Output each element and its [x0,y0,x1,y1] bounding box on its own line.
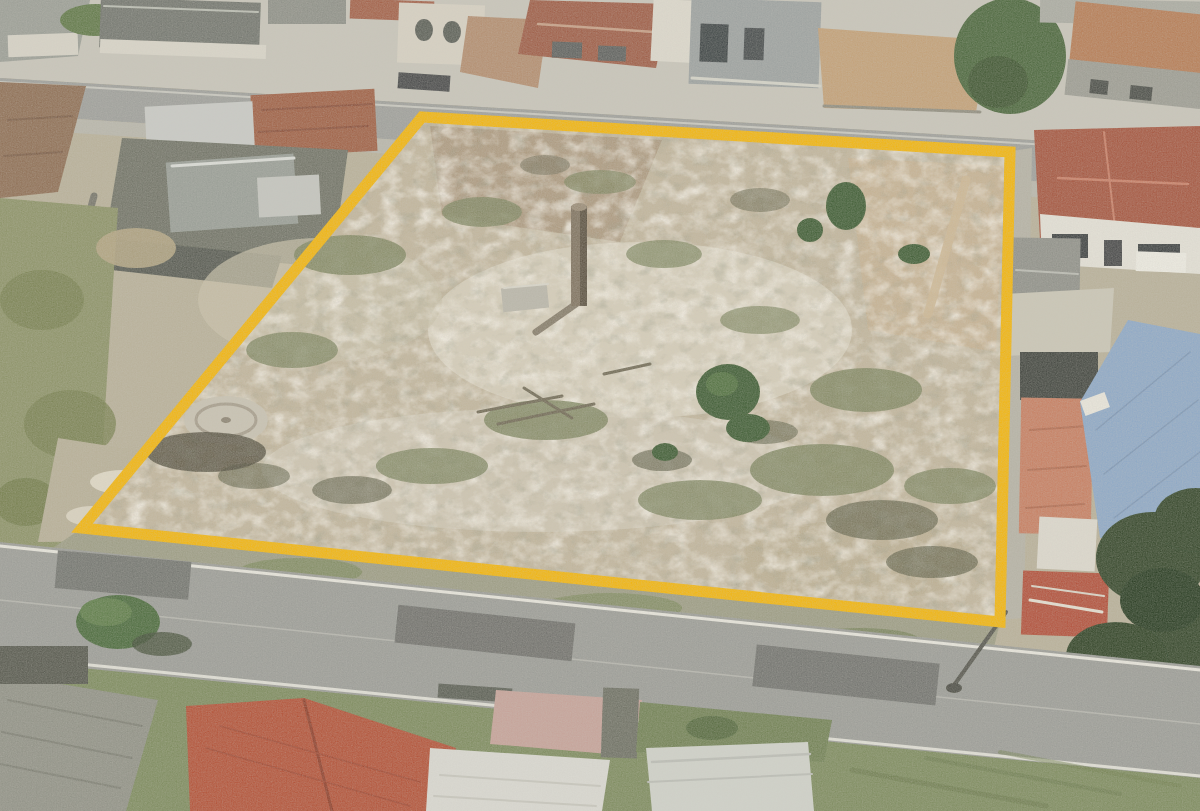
aerial-photo [0,0,1200,811]
aerial-screenshot [0,0,1200,811]
photo-grain-overlay [0,0,1200,811]
